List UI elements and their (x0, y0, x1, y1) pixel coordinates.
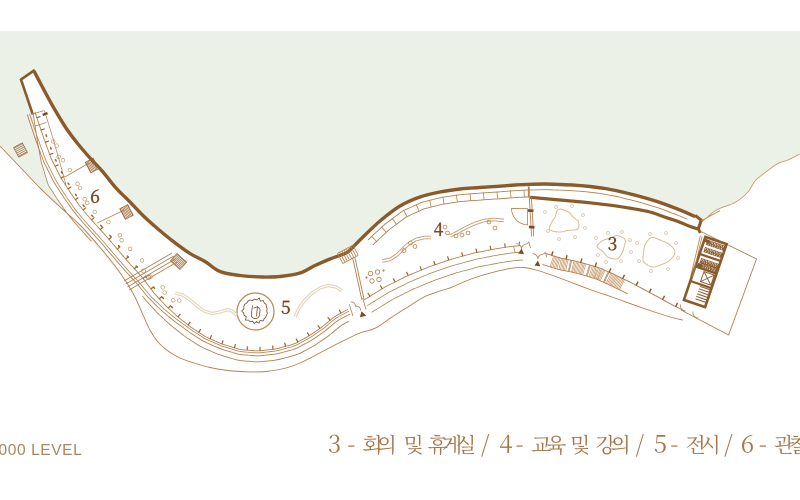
svg-text:000 LEVEL: 000 LEVEL (0, 442, 82, 459)
